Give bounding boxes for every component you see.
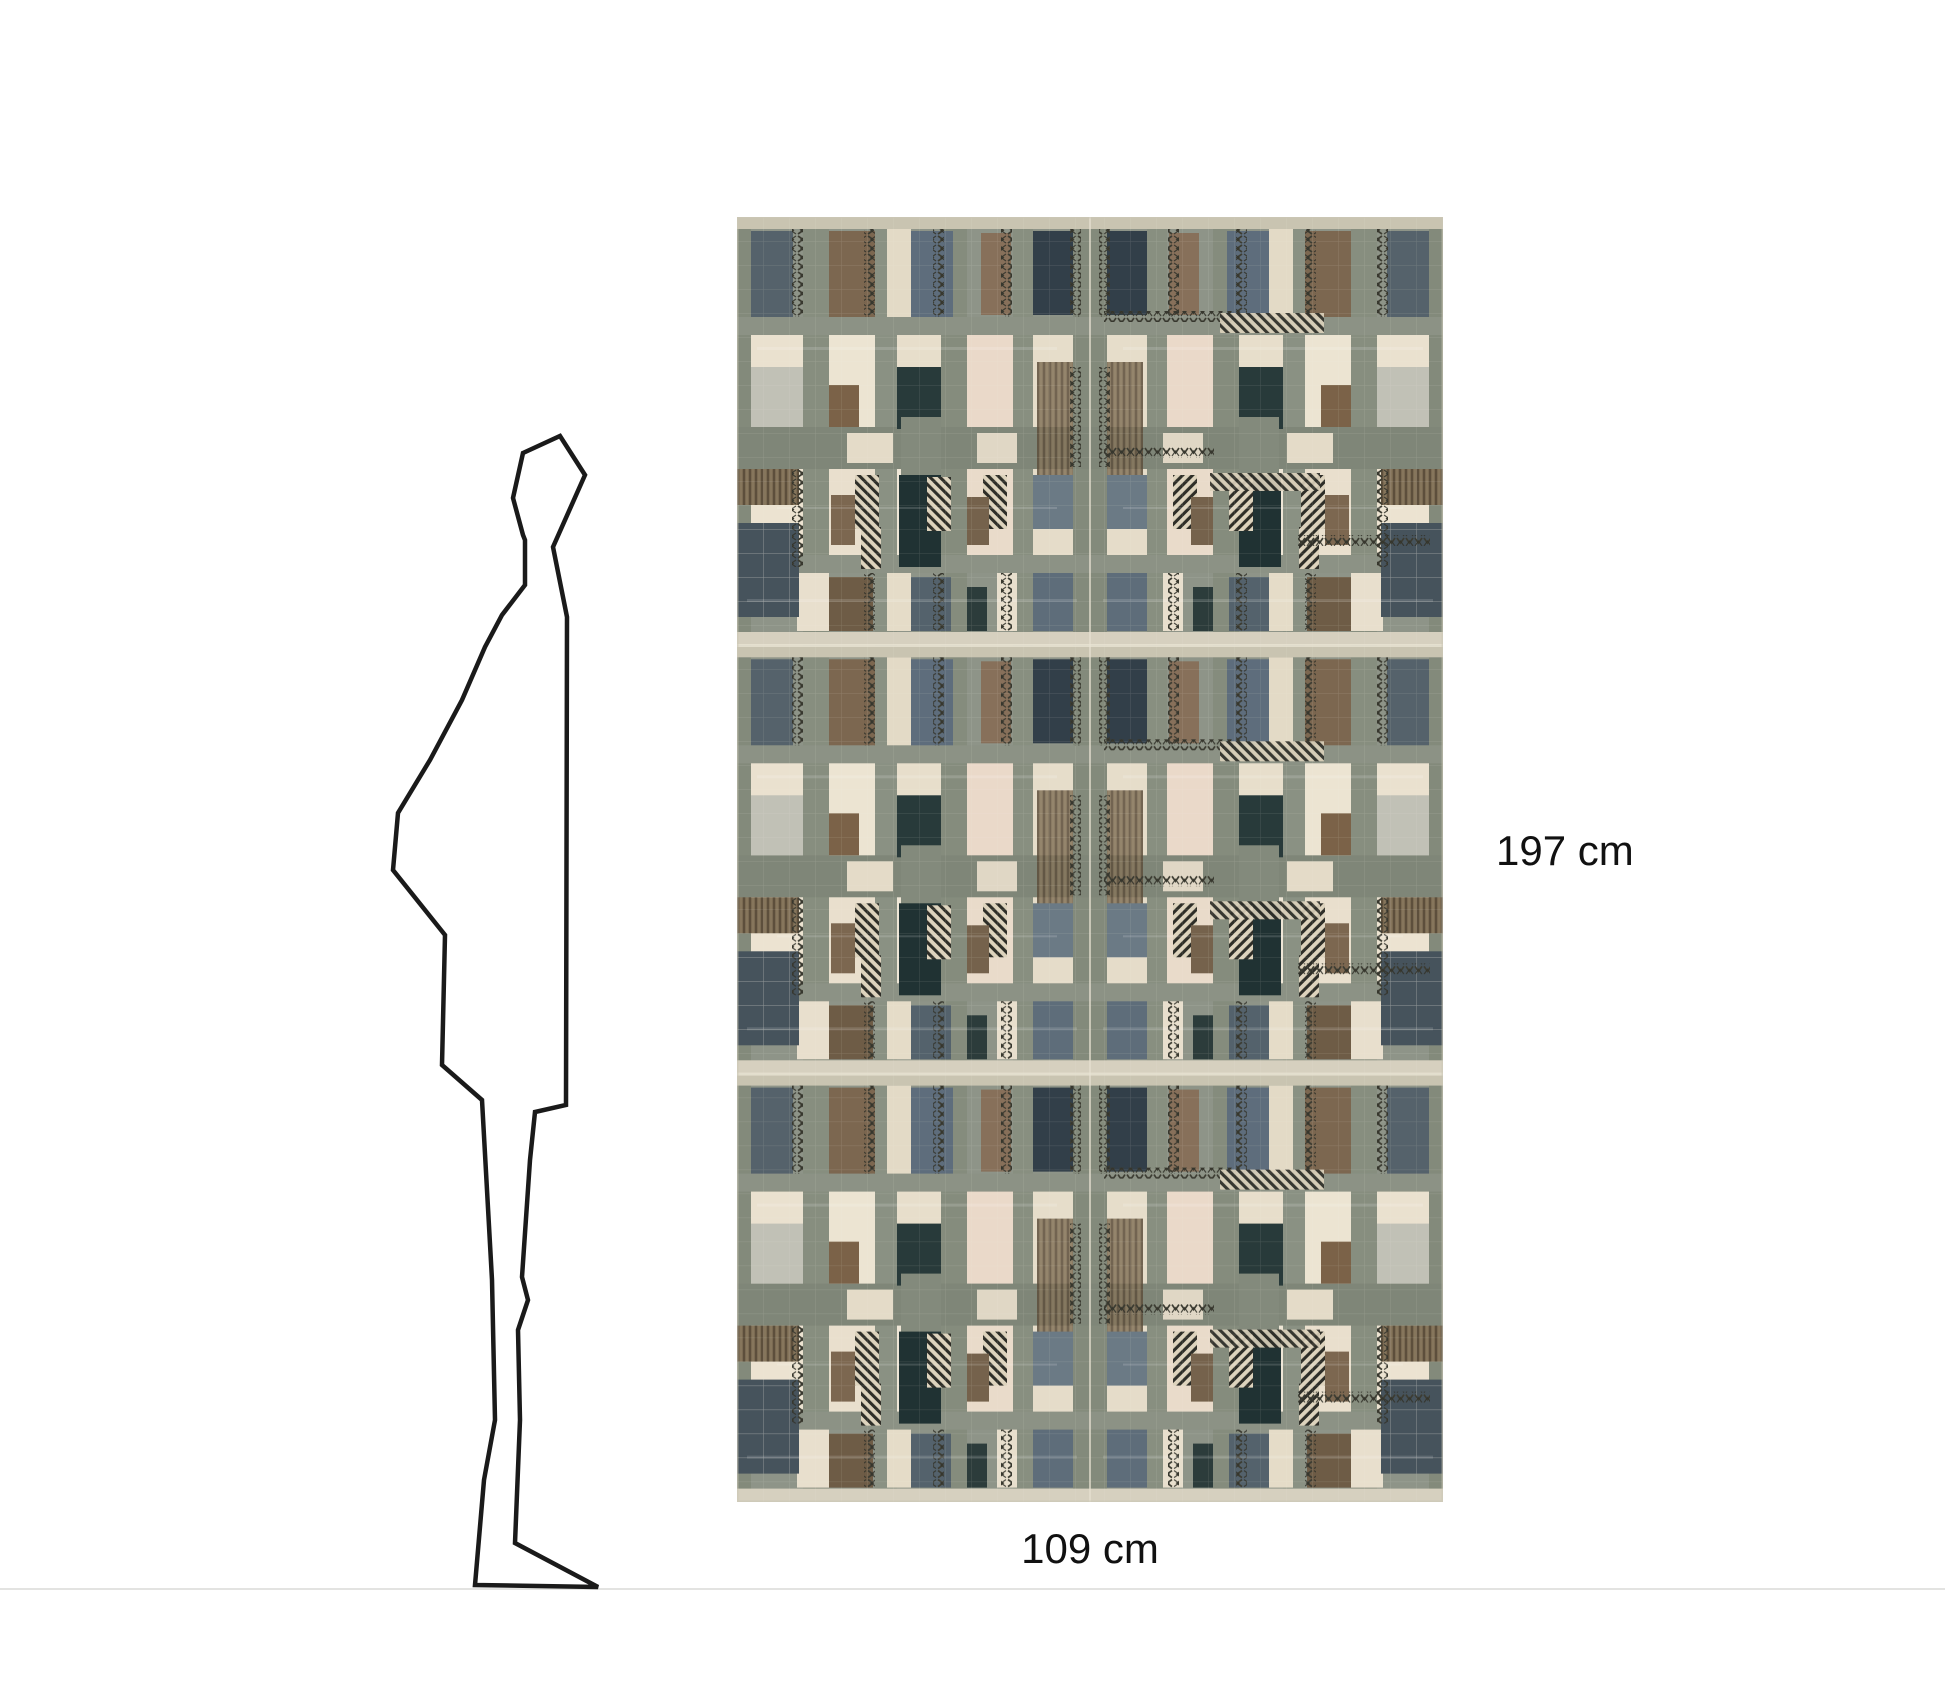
product-scale-diagram: 197 cm 109 cm <box>0 0 1945 1700</box>
human-silhouette-outline <box>393 436 598 1587</box>
fabric-swatch <box>737 217 1443 1502</box>
height-dimension-label: 197 cm <box>1496 828 1634 874</box>
fabric-pattern-tiles <box>737 217 1443 1502</box>
width-dimension-label: 109 cm <box>737 1526 1443 1572</box>
